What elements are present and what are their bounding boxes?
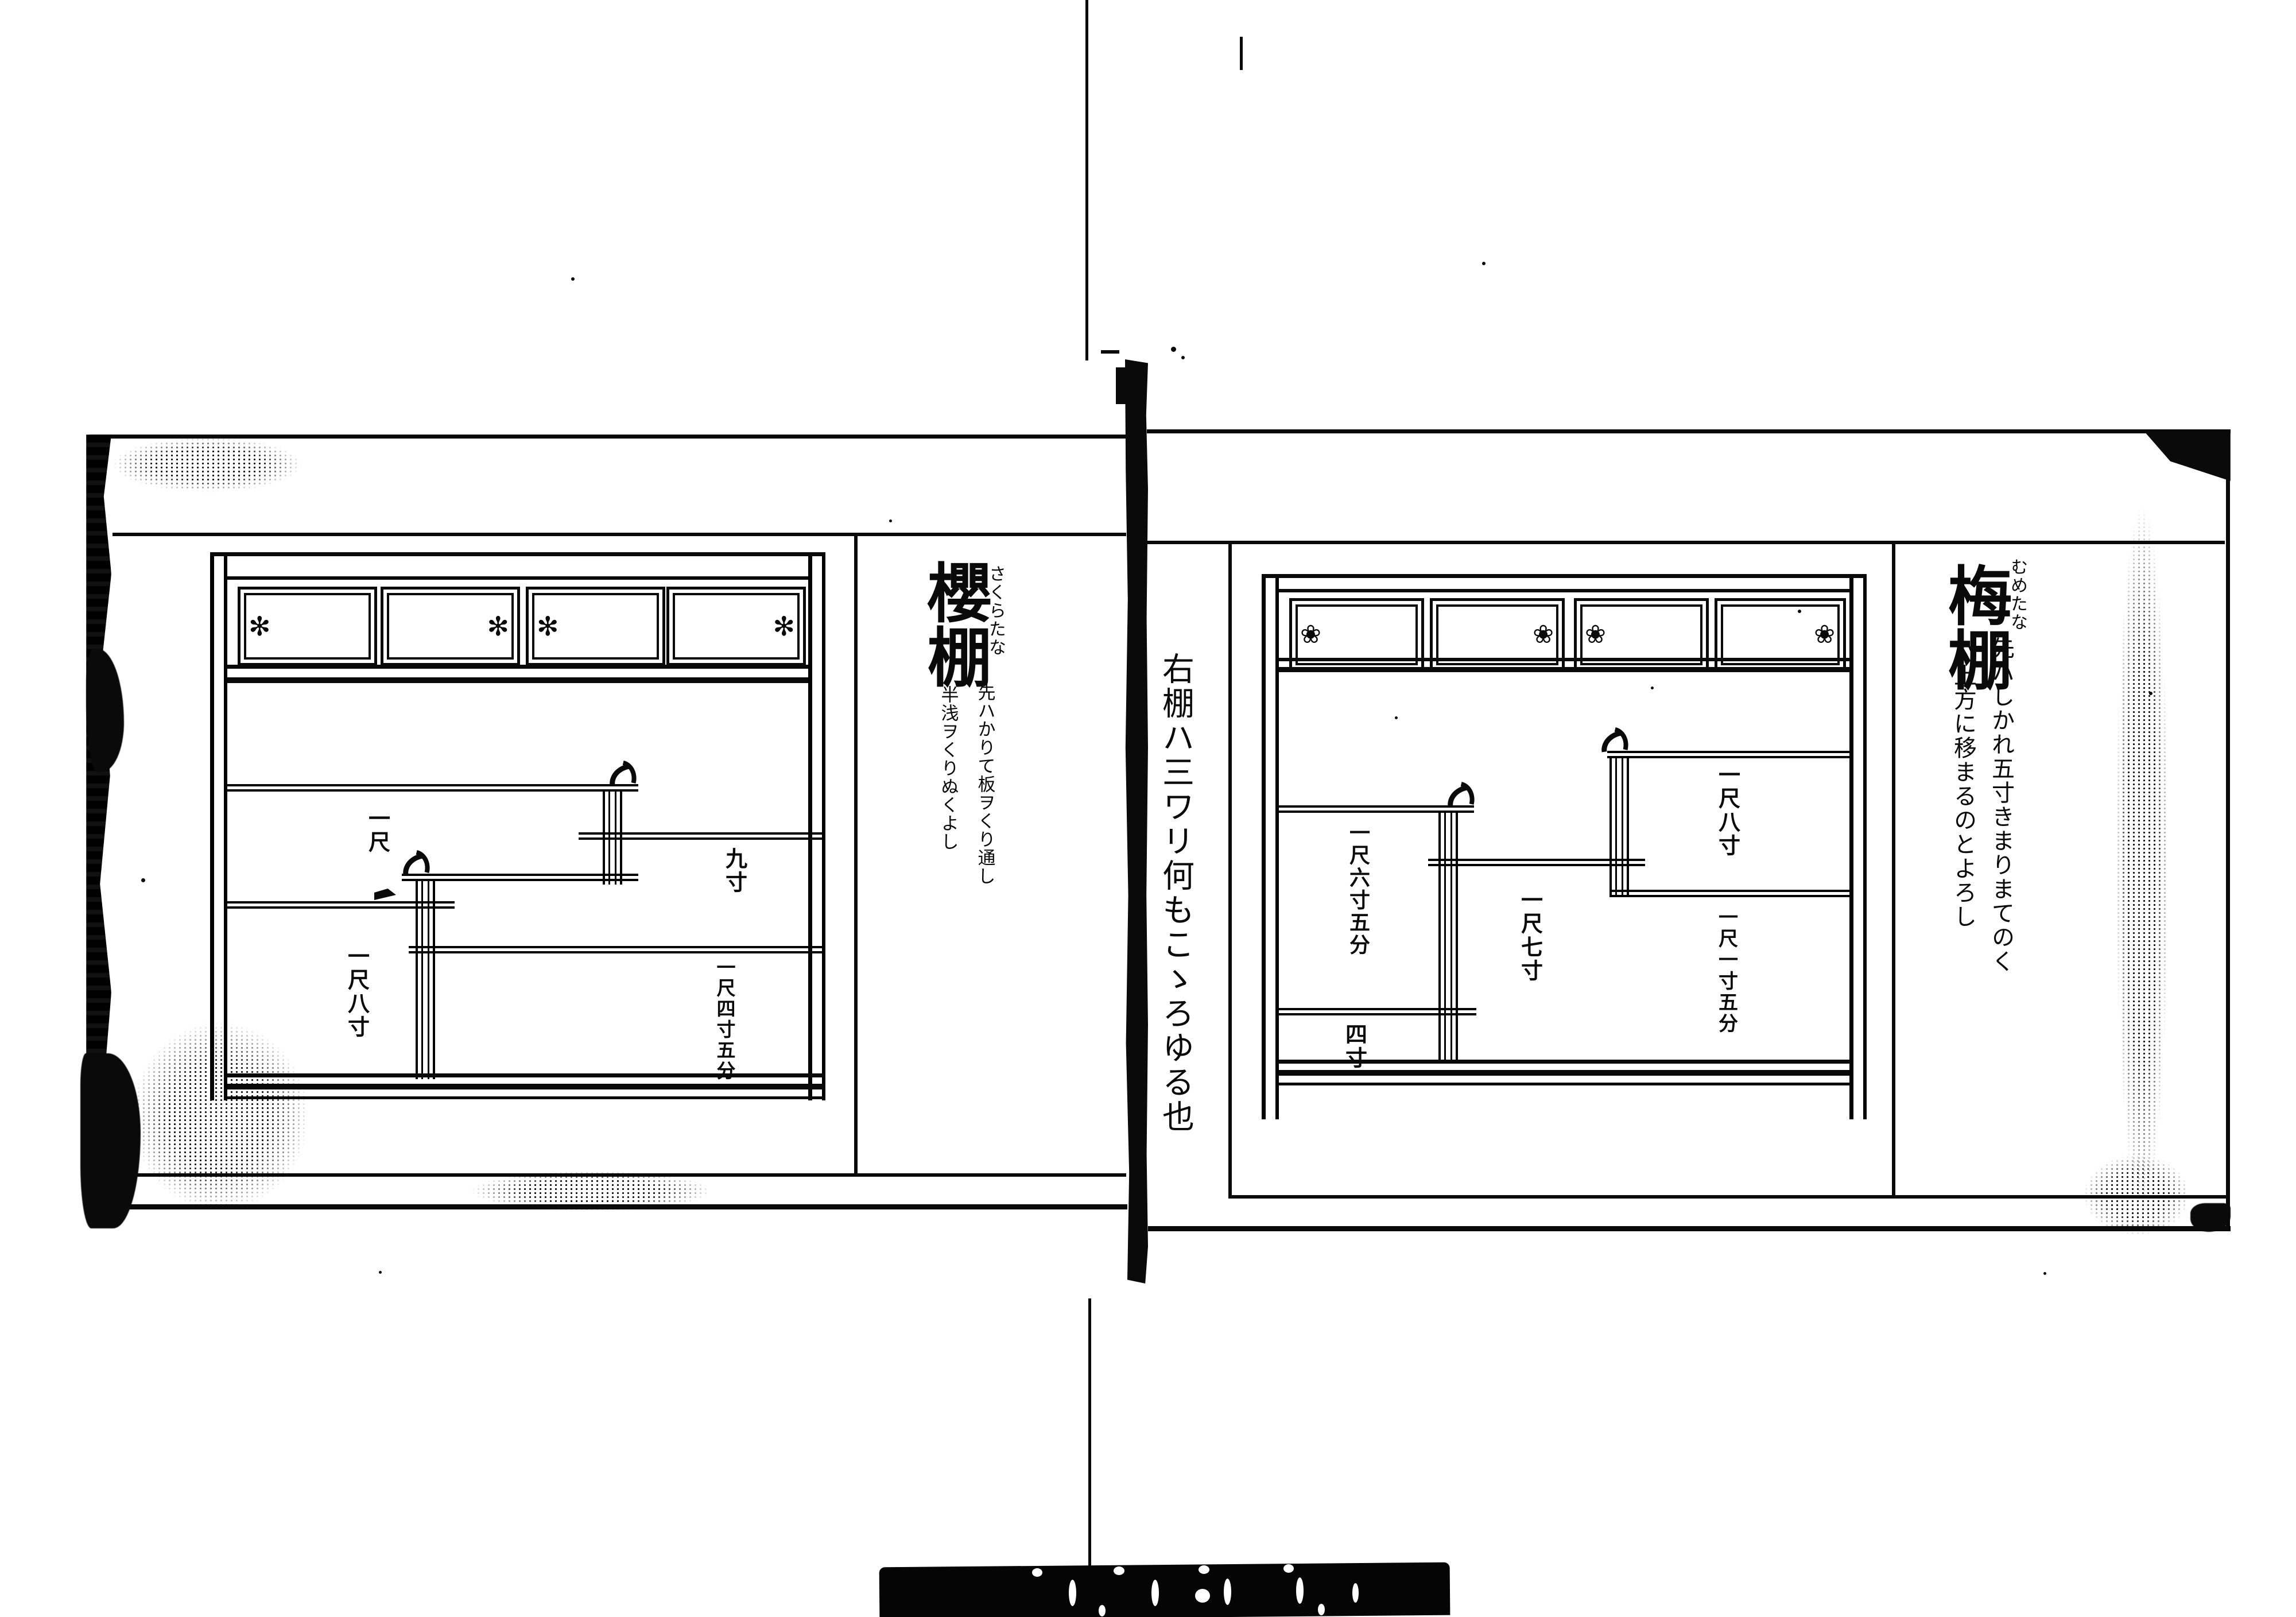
ink-speck — [1181, 356, 1185, 359]
page-title: 櫻棚 — [920, 560, 988, 688]
strip-dot — [1199, 1565, 1209, 1574]
book-gutter-shadow — [1125, 359, 1148, 1283]
left-page-frame-bottom — [130, 1173, 1126, 1177]
scanner-cradle-strip — [879, 1562, 1450, 1617]
dim-label: 四寸 — [1339, 1023, 1371, 1070]
strip-dot — [1318, 1604, 1325, 1615]
dust-speck — [141, 878, 145, 882]
shelf-left — [227, 901, 455, 909]
dust-speck — [571, 277, 575, 281]
dim-label: 一尺八寸 — [1712, 763, 1744, 858]
scanned-book-spread: ✻ ✻ ✻ ✻ 一尺 九寸 一尺八寸 一尺四寸五分 さくらたな 櫻棚 先ハかりて… — [0, 0, 2296, 1617]
shelf-post — [1438, 813, 1458, 1061]
dim-label: 一尺六寸五分 — [1343, 822, 1373, 956]
shelf-lower-left — [1279, 1008, 1476, 1015]
alcove-left-wall — [210, 552, 227, 1100]
dust-speck — [1395, 716, 1398, 719]
scroll-ornament — [401, 853, 432, 873]
alcove-right-wall — [808, 552, 825, 1100]
dim-label: 九寸 — [719, 847, 751, 894]
spine-crease-bottom — [1088, 1298, 1091, 1569]
shelf-post — [1609, 758, 1629, 896]
shelf-lower-right — [1609, 890, 1849, 897]
dust-speck — [889, 519, 892, 522]
smudge-top-left — [113, 437, 302, 492]
spine-crease-top — [1085, 0, 1088, 360]
dim-label: 一尺八寸 — [342, 945, 373, 1039]
transom-panel: ✻ — [666, 587, 806, 666]
strip-dot — [1151, 1580, 1159, 1606]
floor-board-line — [1279, 1070, 1849, 1076]
strip-dot — [1352, 1583, 1359, 1603]
strip-dot — [1296, 1577, 1304, 1604]
plum-flower-icon: ❀ — [1585, 622, 1606, 647]
nageshi-rail — [1279, 667, 1849, 672]
dust-speck — [379, 1271, 382, 1274]
book-right-edge — [2226, 432, 2230, 1231]
transom-bottom-rail — [227, 665, 808, 669]
strip-dot — [1032, 1568, 1042, 1577]
shelf-mid-center — [1428, 859, 1645, 866]
dim-label: 一尺一寸五分 — [1713, 907, 1741, 1034]
right-page-frame-bottom — [1228, 1195, 2227, 1199]
right-page-frame-top — [1147, 541, 2225, 544]
scroll-ornament — [1599, 730, 1630, 750]
transom-top-rail — [1279, 589, 1849, 592]
ink-speck — [1171, 347, 1176, 352]
strip-dot — [1224, 1579, 1231, 1605]
nail-mark — [374, 889, 396, 900]
strip-dot — [1099, 1605, 1106, 1616]
sakura-flower-icon: ✻ — [249, 613, 271, 639]
dim-label: 一尺七寸 — [1515, 889, 1546, 983]
book-bottom-edge-right — [1148, 1226, 2231, 1231]
strip-dot — [1195, 1589, 1210, 1603]
plum-flower-icon: ❀ — [1814, 622, 1835, 647]
strip-dot — [1114, 1566, 1124, 1575]
shelf-upper-right — [1607, 751, 1849, 758]
smudge-bottom-center — [471, 1171, 712, 1211]
strip-dot — [1283, 1564, 1294, 1573]
shelf-top — [227, 784, 638, 792]
dust-speck — [1651, 687, 1654, 689]
scroll-ornament — [1445, 785, 1476, 804]
dim-label: 一尺四寸五分 — [711, 957, 738, 1081]
transom-top-rail — [227, 576, 808, 580]
left-page-title-separator — [854, 533, 858, 1177]
annotation-column: 先ハかりて板ヲくり通し — [972, 683, 998, 885]
dust-speck — [1798, 610, 1801, 613]
book-gutter-notch — [1116, 367, 1127, 404]
annotation-column: ハ上方に移まるのとよろし — [1946, 639, 1980, 929]
annotation-column: 先ハしかれ五寸きまりまてのく — [1984, 636, 2018, 974]
transom-bottom-rail — [1279, 658, 1849, 661]
alcove-lintel — [1262, 574, 1867, 578]
margin-note-column: 右棚ハ三ワリ何もこゝろゆる也 — [1153, 652, 1199, 1134]
right-page-title-separator — [1892, 541, 1895, 1199]
dust-speck — [2149, 692, 2152, 695]
shelf-mid-left — [1279, 805, 1474, 813]
right-edge-corner-blot — [2144, 432, 2231, 481]
sakura-flower-icon: ✻ — [773, 613, 795, 639]
plum-flower-icon: ❀ — [1533, 622, 1554, 647]
alcove-lintel — [210, 552, 825, 556]
strip-dot — [1069, 1580, 1076, 1606]
ink-dash-artifact — [1101, 350, 1119, 354]
sakura-flower-icon: ✻ — [487, 613, 509, 639]
right-page-edge-shadow — [2116, 505, 2169, 1211]
shelf-right — [579, 832, 825, 840]
right-page-frame-left — [1228, 541, 1232, 1199]
shelf-post — [416, 881, 435, 1079]
transom-panel: ✻ — [381, 587, 520, 666]
left-page-frame-top — [113, 533, 1126, 536]
dim-label: 一尺 — [362, 807, 394, 854]
dust-mark — [1240, 37, 1243, 70]
transom-panel: ✻ — [238, 587, 377, 666]
alcove-left-wall — [1262, 574, 1279, 1119]
alcove-right-wall — [1849, 574, 1867, 1119]
dust-speck — [2043, 1272, 2046, 1275]
shelf-lower — [409, 946, 825, 953]
scroll-ornament — [607, 763, 638, 783]
left-edge-blot — [86, 649, 124, 772]
nageshi-rail — [227, 677, 808, 683]
plum-flower-icon: ❀ — [1300, 622, 1321, 647]
transom-panel: ✻ — [526, 587, 665, 666]
floor-board-line — [227, 1084, 825, 1089]
floor-board-line — [227, 1096, 825, 1099]
sakura-flower-icon: ✻ — [537, 613, 559, 639]
shelf-middle — [402, 874, 638, 881]
book-top-edge-right — [1147, 429, 2231, 433]
annotation-column: 半浅ヲくりぬくよし — [936, 685, 961, 851]
dust-speck — [1482, 262, 1486, 265]
floor-board-line — [1279, 1083, 1849, 1085]
